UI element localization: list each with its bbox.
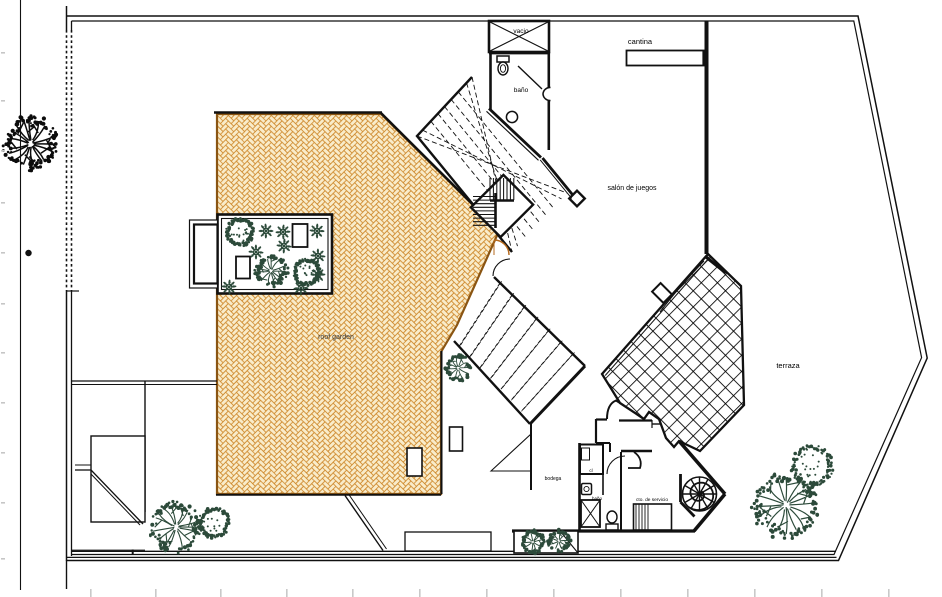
svg-text:cantina: cantina bbox=[628, 37, 653, 46]
svg-text:baño: baño bbox=[514, 87, 529, 94]
svg-text:salón de juegos: salón de juegos bbox=[607, 185, 657, 192]
svg-text:bodega: bodega bbox=[545, 476, 562, 482]
svg-text:cl: cl bbox=[589, 468, 592, 473]
svg-text:cto. de servicio: cto. de servicio bbox=[636, 497, 668, 503]
svg-text:vacio: vacio bbox=[513, 28, 529, 35]
svg-text:terraza: terraza bbox=[776, 361, 800, 370]
svg-text:baño: baño bbox=[592, 496, 603, 501]
svg-text:roof garden: roof garden bbox=[318, 334, 354, 341]
